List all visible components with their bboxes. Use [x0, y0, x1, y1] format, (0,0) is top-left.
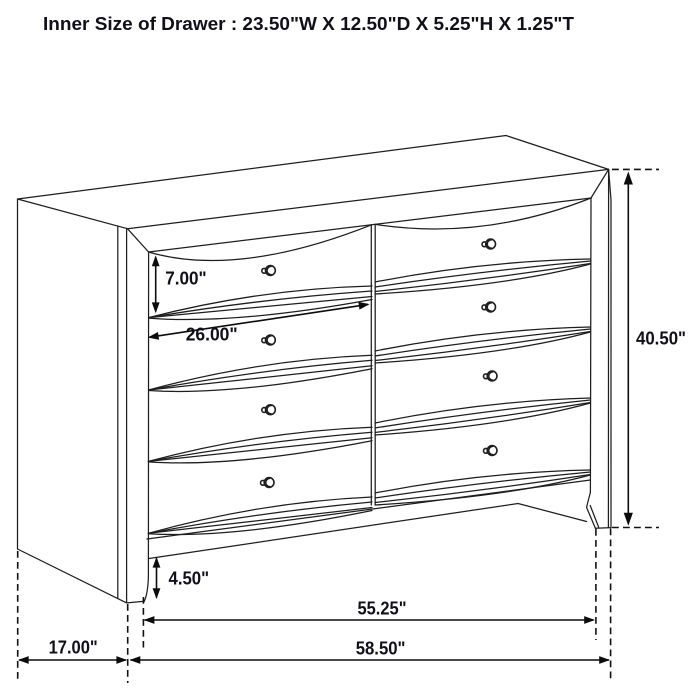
- svg-text:26.00": 26.00": [186, 325, 238, 346]
- svg-text:7.00": 7.00": [165, 269, 206, 290]
- svg-text:Inner Size of Drawer : 23.50"W: Inner Size of Drawer : 23.50"W X 12.50"D…: [43, 13, 575, 34]
- svg-text:40.50": 40.50": [636, 329, 686, 350]
- svg-text:58.50": 58.50": [356, 639, 406, 660]
- svg-text:55.25": 55.25": [358, 599, 407, 620]
- svg-text:4.50": 4.50": [169, 569, 210, 590]
- svg-text:17.00": 17.00": [49, 638, 98, 659]
